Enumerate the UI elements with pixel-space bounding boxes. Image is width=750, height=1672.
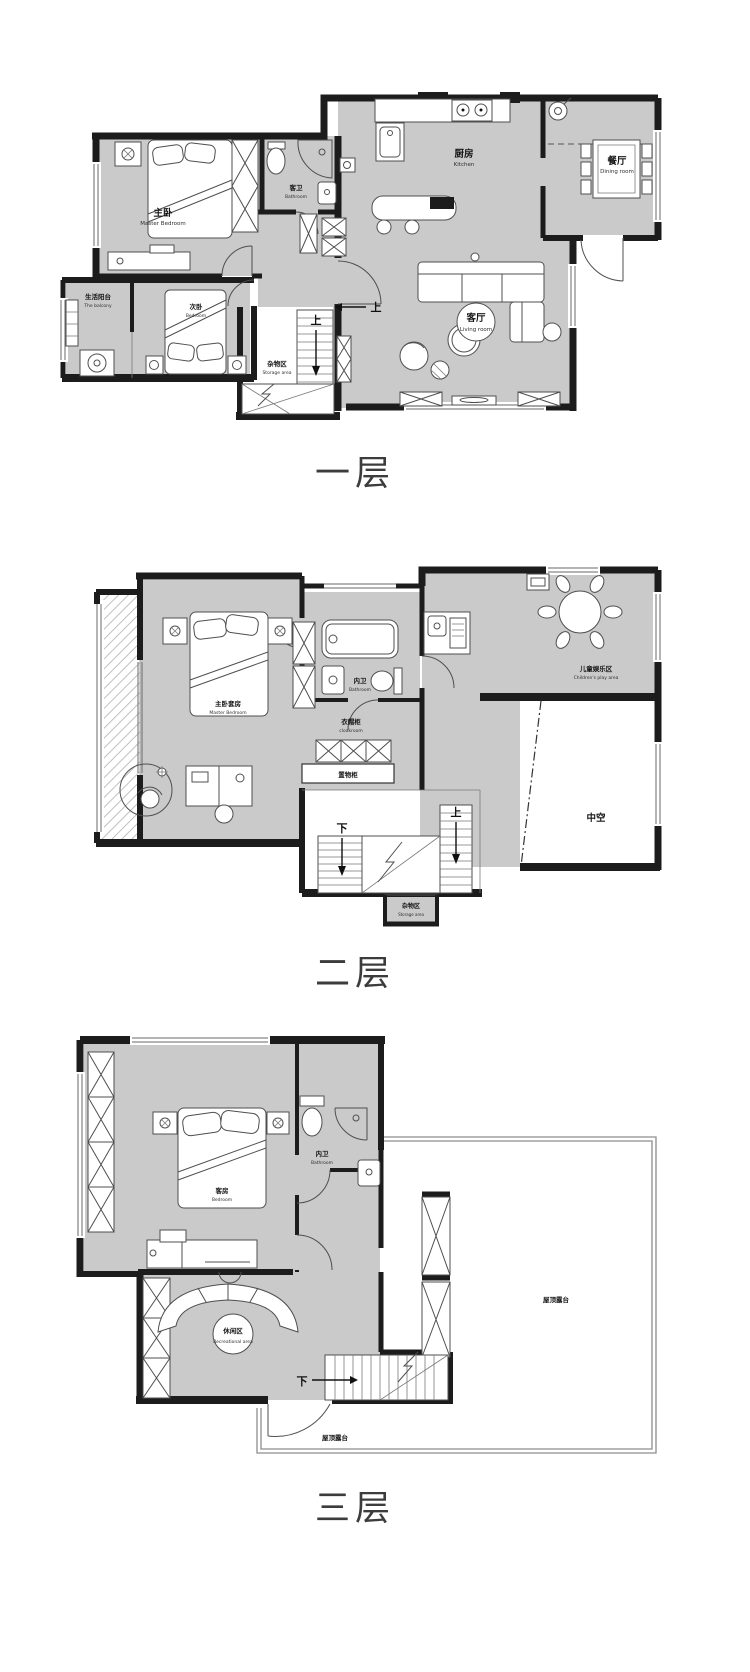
svg-text:Children's play area: Children's play area	[574, 675, 619, 681]
room-guest-bedroom-label: 客房	[215, 1186, 230, 1195]
stair-up-label: 上	[311, 313, 322, 327]
lounge-wardrobes	[143, 1278, 170, 1398]
room-dining-label: 餐厅	[606, 155, 627, 167]
svg-text:Recreational area: Recreational area	[213, 1339, 253, 1345]
floor-2-plan: 置物柜 主卧套房 M	[0, 500, 750, 935]
roof-terrace-right-label: 屋顶露台	[543, 1295, 570, 1304]
room-cloakroom-label: 衣帽柜	[341, 717, 361, 726]
cabinet-label: 置物柜	[338, 770, 358, 779]
terrace-cabinets	[422, 1194, 450, 1360]
svg-text:Bedroom: Bedroom	[212, 1197, 232, 1203]
svg-text:Living room: Living room	[460, 327, 492, 333]
room-guest-bath-label: 客卫	[289, 183, 304, 192]
svg-text:Master Bedroom: Master Bedroom	[140, 221, 185, 227]
svg-text:Storage area: Storage area	[398, 912, 424, 917]
stairs-floor3	[312, 1352, 448, 1400]
floor-2-void	[521, 700, 658, 868]
svg-text:Storage area: Storage area	[262, 370, 291, 376]
room-second-bedroom-label: 次卧	[190, 302, 204, 311]
svg-text:Bathroom: Bathroom	[285, 194, 307, 200]
svg-text:The balcony: The balcony	[83, 303, 112, 309]
floor-plan-page: 主卧 Master Bedroom 客卫 Bathroom 厨房 Kitchen…	[0, 0, 750, 1672]
master-wardrobe-glyph	[232, 140, 258, 232]
entry-up-label: 上	[371, 300, 382, 314]
svg-text:Bathroom: Bathroom	[349, 687, 371, 693]
room-living-label: 客厅	[465, 312, 486, 324]
cloakroom-cabinets	[316, 740, 391, 762]
room-master-suite-label: 主卧套房	[215, 699, 242, 708]
floor-1-title: 一层	[0, 440, 730, 500]
guest-room-wardrobes	[88, 1052, 114, 1232]
stairs-floor2	[318, 805, 472, 893]
stair-down-label-3: 下	[297, 1375, 308, 1388]
room-suite-bath-label: 内卫	[354, 676, 368, 685]
svg-text:Master Bedroom: Master Bedroom	[209, 710, 246, 716]
stair-down-label: 下	[337, 822, 348, 835]
display-cabinet: 置物柜	[302, 764, 394, 783]
room-kitchen-label: 厨房	[454, 148, 473, 160]
room-bath3-label: 内卫	[316, 1149, 330, 1158]
hall-cabinets	[300, 214, 346, 256]
svg-text:Dining room: Dining room	[600, 169, 634, 175]
room-storage-label: 杂物区	[267, 359, 287, 368]
room-play-area-label: 儿童娱乐区	[579, 664, 613, 673]
floor-3-title: 三层	[0, 1465, 730, 1545]
svg-text:Bathroom: Bathroom	[311, 1160, 333, 1166]
room-balcony-label: 生活阳台	[85, 292, 112, 301]
floor-2-balcony-hatch	[98, 594, 140, 842]
stair-up-label-2: 上	[451, 805, 462, 819]
svg-text:Bedroom: Bedroom	[186, 313, 206, 319]
svg-text:Kitchen: Kitchen	[454, 162, 475, 168]
floor-3-plan: 客房 Bedroom 内卫 Bathroom 休闲区 Recreational …	[0, 1005, 750, 1465]
room-master-bedroom-label: 主卧	[153, 207, 173, 219]
floor-1-plan: 主卧 Master Bedroom 客卫 Bathroom 厨房 Kitchen…	[0, 0, 750, 440]
room-void-label: 中空	[586, 812, 606, 824]
room-storage2-label: 杂物区	[402, 902, 420, 910]
roof-terrace-bottom-label: 屋顶露台	[322, 1433, 349, 1442]
floor-2-title: 二层	[0, 935, 730, 1005]
svg-text:cloakroom: cloakroom	[339, 728, 362, 734]
room-lounge-label: 休闲区	[222, 1326, 243, 1335]
